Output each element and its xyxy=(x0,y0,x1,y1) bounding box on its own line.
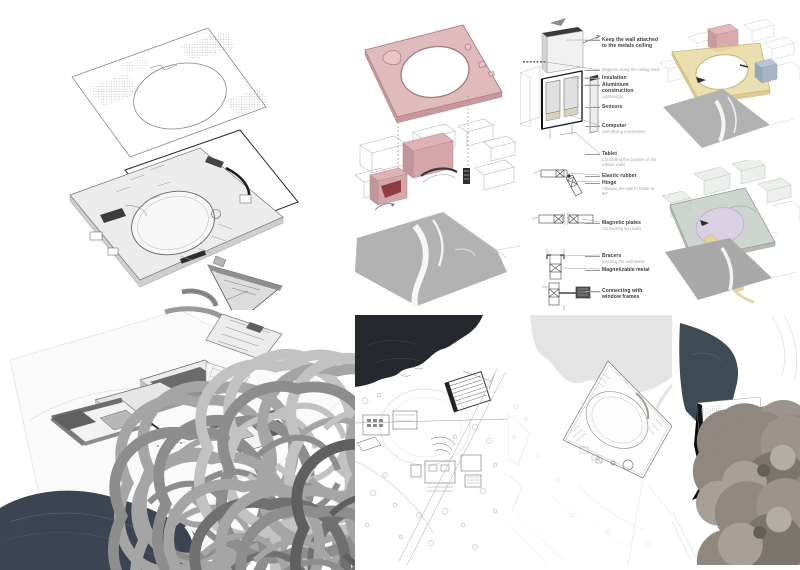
ceiling-attachment xyxy=(542,18,600,73)
detail-bracers xyxy=(547,249,600,279)
panel-pink-exploded-axon xyxy=(355,10,520,315)
context-scribbles xyxy=(537,454,673,566)
panel-exploded-axon xyxy=(30,10,335,310)
panel-plan-light xyxy=(508,315,672,565)
black-lake xyxy=(355,315,483,387)
pink-volume-small xyxy=(370,168,407,205)
detail-hinge xyxy=(534,170,600,196)
panel-plan-dark-lake xyxy=(355,315,508,565)
detail-magnetic-plates xyxy=(532,213,600,225)
ground-plane xyxy=(663,85,794,148)
panel-wall-detail xyxy=(520,15,660,315)
presentation-board: { "sheet": { "background": "#ffffff" }, … xyxy=(0,0,800,570)
floor-plate xyxy=(70,148,283,287)
blue-volume xyxy=(755,59,777,83)
roof-plate xyxy=(72,28,270,157)
panel-yellow-overlay-axon xyxy=(660,15,800,160)
site-plan-lines xyxy=(355,369,508,565)
panel-site-axonometric xyxy=(0,300,355,570)
detail-window-frame xyxy=(542,283,600,310)
ground-plane xyxy=(355,212,520,306)
wall-assembly xyxy=(520,66,598,139)
panel-green-overlay-axon xyxy=(660,160,800,315)
tree-canopy xyxy=(693,400,800,565)
pink-roof-slab xyxy=(365,25,502,123)
panel-aerial-render xyxy=(672,315,800,565)
neighbor-plan-fragment xyxy=(508,405,564,565)
